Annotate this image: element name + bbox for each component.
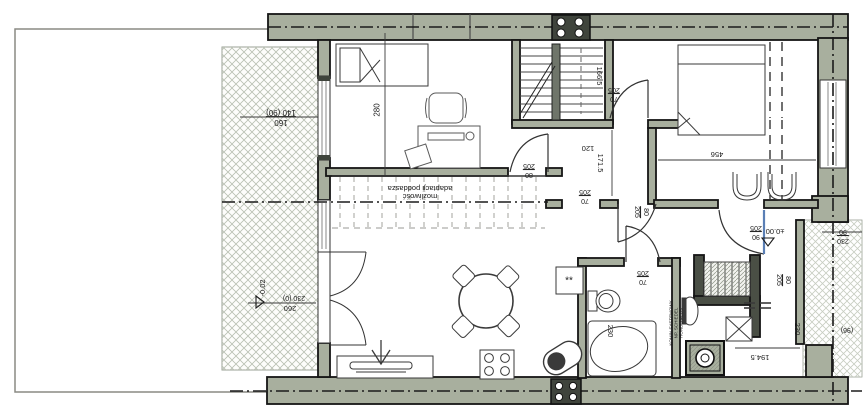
- washing-machine: [726, 317, 752, 341]
- wall-study-bottom: [326, 168, 508, 176]
- kitchen-counter: [337, 356, 433, 378]
- wall-bedroom-left: [648, 128, 656, 204]
- door-entrance-arc: [719, 210, 764, 254]
- terrace-door-opening: [318, 252, 366, 345]
- stove: [480, 350, 514, 379]
- desk-and-chair: [405, 93, 480, 169]
- bathtub: [586, 321, 656, 378]
- chairs-bedroom: [733, 172, 796, 200]
- floor-plan-drawing: [0, 0, 865, 420]
- fridge: [556, 267, 583, 294]
- window-living: [318, 200, 330, 252]
- dining-table: [451, 264, 521, 339]
- bed-bedroom: [678, 45, 765, 135]
- floor-plan-canvas: 160140 (90)280możliwośćadaptacji poddasz…: [0, 0, 865, 420]
- chimney-schiedel: [686, 341, 724, 375]
- door-bathroom: [626, 226, 660, 262]
- window-study: [318, 76, 330, 160]
- door-study: [510, 134, 548, 172]
- washbasin: [682, 297, 698, 325]
- staircase-lower: [704, 262, 750, 296]
- wall-porch-inner: [796, 220, 804, 344]
- wall-porch-pier: [806, 345, 832, 377]
- bed-study: [336, 44, 428, 86]
- door-landing-bedroom: [610, 80, 648, 118]
- staircase-upper: [520, 44, 603, 120]
- toilet: [588, 290, 620, 312]
- chimney-top: [552, 15, 590, 40]
- terrace-area: [222, 47, 318, 370]
- wall-bath-right: [672, 258, 680, 378]
- chimney-bottom: [551, 379, 581, 404]
- furniture: [336, 44, 796, 379]
- door-bedroom-hall: [618, 204, 656, 242]
- wall-shaft-left: [512, 40, 520, 124]
